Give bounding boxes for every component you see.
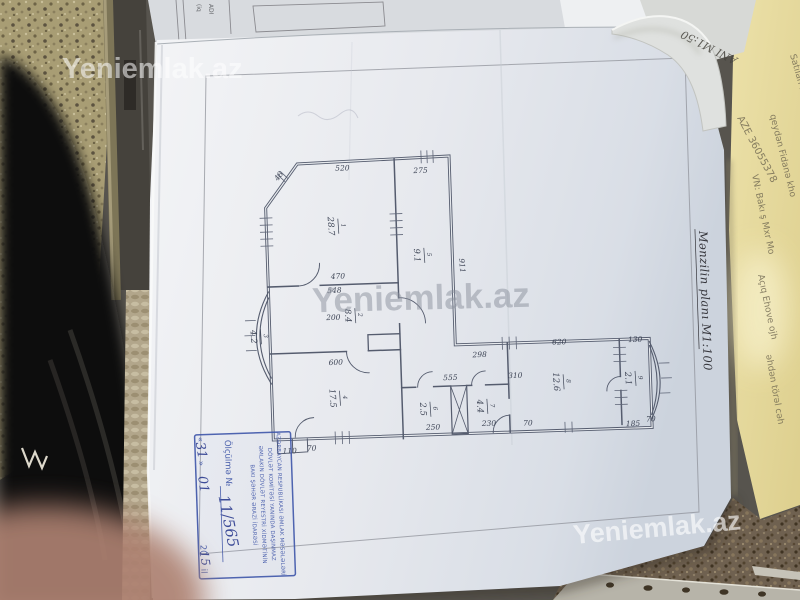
dimension-label: 298 [471, 350, 487, 360]
dimension-label: 70 [523, 418, 533, 427]
stamp-month: 01 [194, 475, 211, 493]
svg-text:17.5: 17.5 [326, 388, 337, 408]
svg-text:3: 3 [262, 334, 269, 338]
dimension-label: 310 [508, 371, 523, 380]
stamp-day: 31 [192, 441, 209, 460]
svg-text:4.2: 4.2 [247, 329, 258, 344]
svg-text:7: 7 [488, 403, 495, 407]
stamp-quote-close: » [195, 461, 205, 467]
svg-text:9.1: 9.1 [411, 248, 422, 262]
svg-text:28.7: 28.7 [325, 215, 336, 236]
dimension-label: 620 [552, 337, 567, 346]
svg-text:1: 1 [339, 223, 346, 227]
dimension-label: 555 [443, 373, 458, 382]
dimension-label: 185 [626, 419, 641, 428]
dimension-label: 250 [425, 422, 441, 432]
svg-text:5: 5 [425, 252, 432, 256]
stamp-measure-label: Ölçülmə № [222, 440, 235, 487]
dimension-label: 230 [481, 419, 497, 429]
under-page-fragment: (iq [195, 4, 202, 12]
dimension-label: 70 [307, 444, 317, 453]
dimension-label: 470 [330, 271, 346, 281]
under-page-fragment: ADI [207, 4, 214, 15]
stamp-year: 15 [197, 550, 213, 567]
svg-text:12.6: 12.6 [550, 372, 561, 392]
svg-text:9: 9 [636, 375, 643, 379]
photographed-floor-plan-document: Satılan mənzilin komqeydən Fidanə khoAZE… [0, 0, 800, 600]
svg-text:4: 4 [341, 394, 348, 399]
watermark-center: Yeniemlak.az [311, 276, 530, 321]
svg-text:6: 6 [431, 406, 438, 410]
dimension-label: 600 [328, 358, 343, 367]
surveyor-stamp: AZƏRBAYCAN RESPUBLİKASI ƏMLAK MƏSƏLƏLƏRİ… [192, 432, 296, 579]
photo-svg: Satılan mənzilin komqeydən Fidanə khoAZE… [0, 0, 800, 600]
yellow-highlight [732, 250, 788, 370]
dimension-label: 70 [646, 414, 656, 423]
svg-text:2.5: 2.5 [417, 401, 428, 416]
dimension-label: 130 [628, 335, 643, 344]
stamp-year-suffix: il [198, 569, 208, 574]
watermark-top-left: Yeniemlak.az [62, 53, 243, 85]
dimension-label: 275 [412, 166, 428, 176]
dimension-label: 911 [457, 258, 467, 273]
dimension-label: 520 [335, 163, 350, 172]
svg-text:2.1: 2.1 [622, 370, 633, 385]
svg-text:8: 8 [564, 379, 571, 383]
svg-text:4.4: 4.4 [474, 398, 485, 413]
